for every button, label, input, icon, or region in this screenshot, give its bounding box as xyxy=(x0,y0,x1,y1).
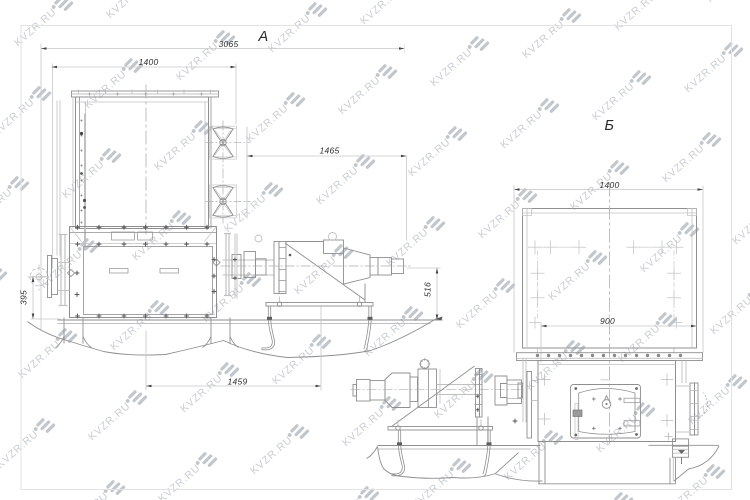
svg-text:Б: Б xyxy=(605,118,614,134)
svg-text:900: 900 xyxy=(600,316,615,326)
svg-text:395: 395 xyxy=(19,290,29,305)
svg-text:3065: 3065 xyxy=(218,39,238,49)
svg-text:1400: 1400 xyxy=(138,57,158,67)
svg-text:516: 516 xyxy=(423,282,433,297)
svg-text:1465: 1465 xyxy=(319,146,339,156)
svg-text:1459: 1459 xyxy=(227,377,247,387)
svg-text:А: А xyxy=(258,29,269,45)
